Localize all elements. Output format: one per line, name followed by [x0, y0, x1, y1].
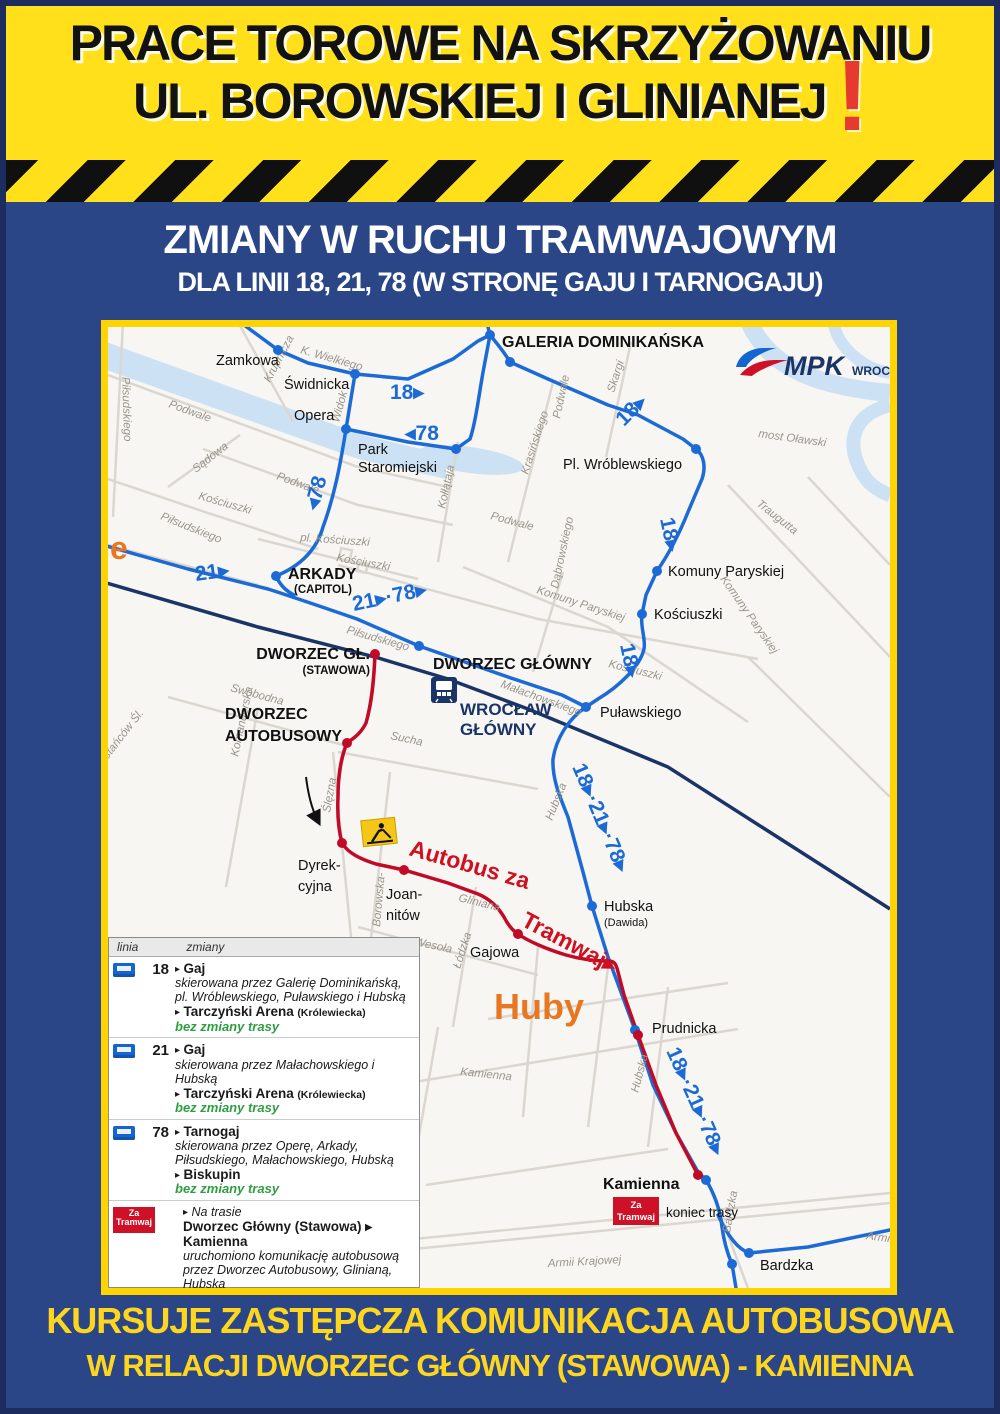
svg-text:(CAPITOL): (CAPITOL): [294, 584, 352, 596]
svg-text:Dyrek-: Dyrek-: [298, 858, 341, 874]
subheader: ZMIANY W RUCHU TRAMWAJOWYM DLA LINII 18,…: [0, 202, 1000, 320]
edge-label: e: [110, 530, 128, 566]
svg-text:21▸: 21▸: [193, 558, 231, 586]
svg-text:most Oławski: most Oławski: [758, 428, 828, 449]
svg-text:Komuny Paryskiej: Komuny Paryskiej: [668, 564, 784, 580]
svg-text:WROCŁAW: WROCŁAW: [460, 700, 553, 719]
svg-text:18▸: 18▸: [655, 515, 685, 554]
svg-text:Świdnicka: Świdnicka: [284, 375, 350, 393]
svg-text:Staromiejski: Staromiejski: [358, 460, 437, 476]
city-map: MPK WROCŁAW Podwale Podwale Podwale Podw…: [108, 327, 890, 1288]
svg-text:Dąbrowskiego: Dąbrowskiego: [549, 515, 576, 589]
svg-text:18▸·21▸·78▸: 18▸·21▸·78▸: [661, 1044, 730, 1160]
svg-text:Prudnicka: Prudnicka: [652, 1021, 717, 1037]
legend-row-21: 21 ▸ Gaj skierowana przez Małachowskiego…: [109, 1038, 419, 1119]
svg-text:Armii Krajowej: Armii Krajowej: [547, 1254, 622, 1270]
svg-text:GALERIA DOMINIKAŃSKA: GALERIA DOMINIKAŃSKA: [502, 332, 705, 351]
district-label-huby: Huby: [494, 986, 584, 1027]
svg-text:Kamienna: Kamienna: [460, 1066, 513, 1083]
svg-text:(Dawida): (Dawida): [604, 917, 648, 929]
svg-text:18▸: 18▸: [611, 389, 652, 430]
svg-text:18▸: 18▸: [390, 381, 425, 404]
svg-text:Piłsudskiego: Piłsudskiego: [119, 377, 133, 443]
svg-text:WROCŁAW: WROCŁAW: [852, 364, 890, 378]
svg-text:Gajowa: Gajowa: [470, 945, 520, 961]
tram-badge-icon: [113, 963, 135, 977]
svg-text:21▸·78▸: 21▸·78▸: [350, 578, 429, 616]
svg-text:Bardzka: Bardzka: [760, 1258, 814, 1274]
svg-text:Tramwaj: Tramwaj: [617, 1212, 655, 1223]
svg-text:ARKADY: ARKADY: [288, 566, 357, 583]
svg-text:Puławskiego: Puławskiego: [600, 705, 681, 721]
svg-text:GŁÓWNY: GŁÓWNY: [460, 720, 537, 739]
legend-header: linia zmiany: [109, 938, 419, 957]
poster-header: PRACE TOROWE NA SKRZYŻOWANIU UL. BOROWSK…: [0, 0, 1000, 160]
legend-col-line: linia: [117, 940, 138, 954]
tram-badge-icon: [113, 1044, 135, 1058]
poster-footer: KURSUJE ZASTĘPCZA KOMUNIKACJA AUTOBUSOWA…: [0, 1300, 1000, 1384]
legend-row-bus: Za Tramwaj ▸ Na trasie Dworzec Główny (S…: [109, 1201, 419, 1288]
svg-text:Kamienna: Kamienna: [603, 1176, 680, 1193]
svg-text:Kościuszki: Kościuszki: [654, 607, 723, 623]
svg-text:Zamkowa: Zamkowa: [216, 353, 280, 369]
svg-text:Armii: Armii: [865, 1230, 890, 1246]
svg-text:MPK: MPK: [784, 351, 847, 381]
svg-text:DWORZEC GŁ.: DWORZEC GŁ.: [256, 646, 370, 663]
svg-text:Podwale: Podwale: [489, 510, 535, 533]
svg-text:DWORZEC GŁÓWNY: DWORZEC GŁÓWNY: [433, 654, 592, 673]
map-frame: MPK WROCŁAW Podwale Podwale Podwale Podw…: [101, 320, 897, 1295]
svg-text:Powstańców Śl.: Powstańców Śl.: [108, 707, 146, 779]
svg-text:Park: Park: [358, 442, 389, 458]
legend-row-18: 18 ▸ Gaj skierowana przez Galerię Domini…: [109, 957, 419, 1038]
legend-row-78: 78 ▸ Tarnogaj skierowana przez Operę, Ar…: [109, 1120, 419, 1201]
svg-text:◂78: ◂78: [404, 422, 439, 445]
svg-text:Sucha: Sucha: [389, 730, 423, 749]
hazard-stripe-band: [0, 160, 1000, 202]
svg-text:Opera: Opera: [294, 408, 335, 424]
svg-text:Traugutta: Traugutta: [754, 498, 800, 537]
legend-col-changes: zmiany: [186, 940, 224, 954]
train-station-icon: [431, 677, 457, 703]
subheader-line1: ZMIANY W RUCHU TRAMWAJOWYM: [0, 218, 1000, 263]
subheader-line2: DLA LINII 18, 21, 78 (W STRONĘ GAJU I TA…: [0, 267, 1000, 298]
footer-line2: W RELACJI DWORZEC GŁÓWNY (STAWOWA) - KAM…: [0, 1348, 1000, 1384]
svg-text:Pl. Wróblewskiego: Pl. Wróblewskiego: [563, 457, 682, 473]
svg-text:Komuny Paryskiej: Komuny Paryskiej: [718, 574, 781, 657]
footer-line1: KURSUJE ZASTĘPCZA KOMUNIKACJA AUTOBUSOWA: [0, 1300, 1000, 1342]
map-legend: linia zmiany 18 ▸ Gaj skierowana przez G…: [108, 937, 420, 1288]
svg-text:Autobus za: Autobus za: [407, 835, 534, 894]
mpk-logo: MPK WROCŁAW: [736, 348, 890, 381]
tram-badge-icon: [113, 1126, 135, 1140]
koniec-trasy-label: koniec trasy: [666, 1205, 738, 1220]
za-tramwaj-badge-icon: Za Tramwaj: [113, 1207, 155, 1233]
svg-text:Za: Za: [630, 1200, 642, 1211]
svg-text:cyjna: cyjna: [298, 879, 333, 895]
svg-text:Hubska: Hubska: [604, 899, 654, 915]
svg-text:nitów: nitów: [386, 908, 420, 924]
construction-icon: [361, 817, 398, 846]
svg-text:AUTOBUSOWY: AUTOBUSOWY: [225, 728, 342, 745]
svg-text:DWORZEC: DWORZEC: [225, 706, 308, 723]
svg-text:Hubska: Hubska: [544, 781, 570, 822]
svg-text:18▸·21▸·78▸: 18▸·21▸·78▸: [567, 760, 634, 877]
svg-text:18▸: 18▸: [615, 641, 645, 680]
direction-arrow: [306, 777, 317, 819]
svg-text:Krasińskiego: Krasińskiego: [519, 409, 551, 476]
svg-text:(STAWOWA): (STAWOWA): [303, 665, 371, 677]
header-line2: UL. BOROWSKIEJ I GLINIANEJ!: [0, 72, 1000, 130]
svg-text:Swobodna: Swobodna: [229, 682, 285, 708]
svg-text:Joan-: Joan-: [386, 887, 422, 903]
